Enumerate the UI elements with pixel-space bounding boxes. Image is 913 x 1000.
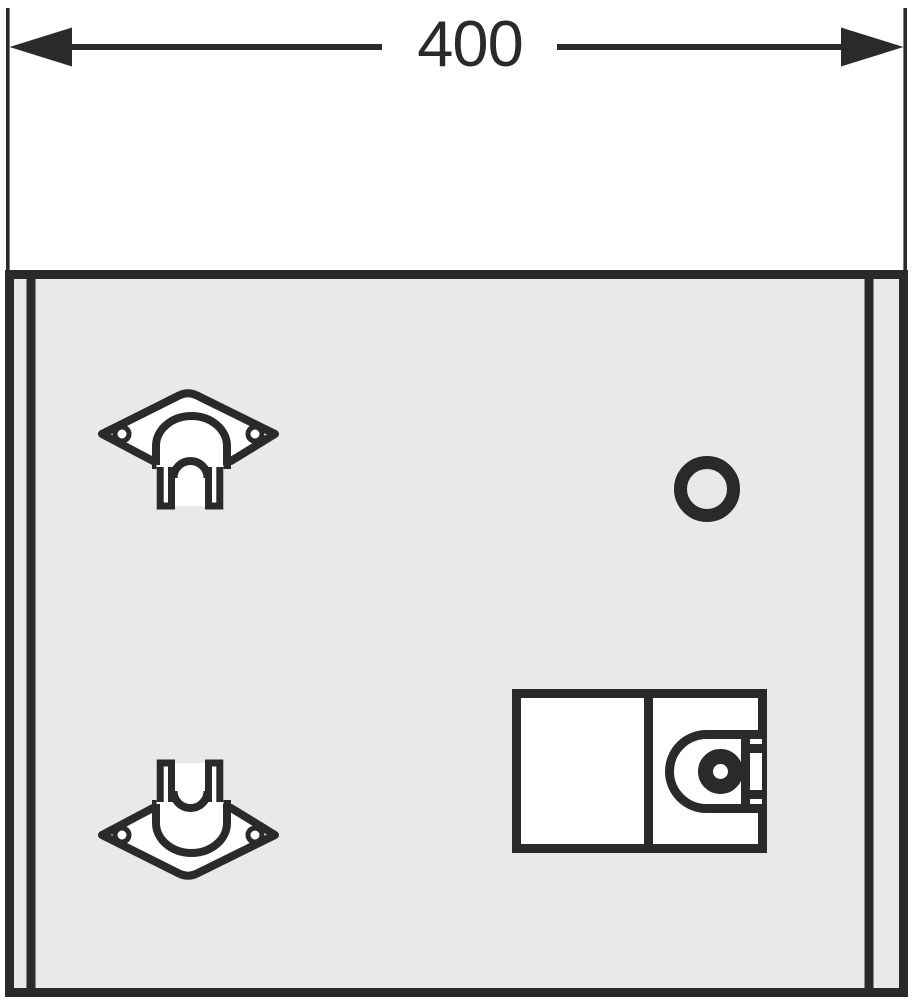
dimension-arrowhead-right-icon [841,28,904,67]
front-panel [5,270,908,997]
dimension-label: 400 [417,7,522,80]
lock-box [517,693,763,849]
panel-surface [5,270,908,997]
dimension-arrowhead-left-icon [10,28,73,67]
technical-drawing: 400 [0,0,913,1000]
